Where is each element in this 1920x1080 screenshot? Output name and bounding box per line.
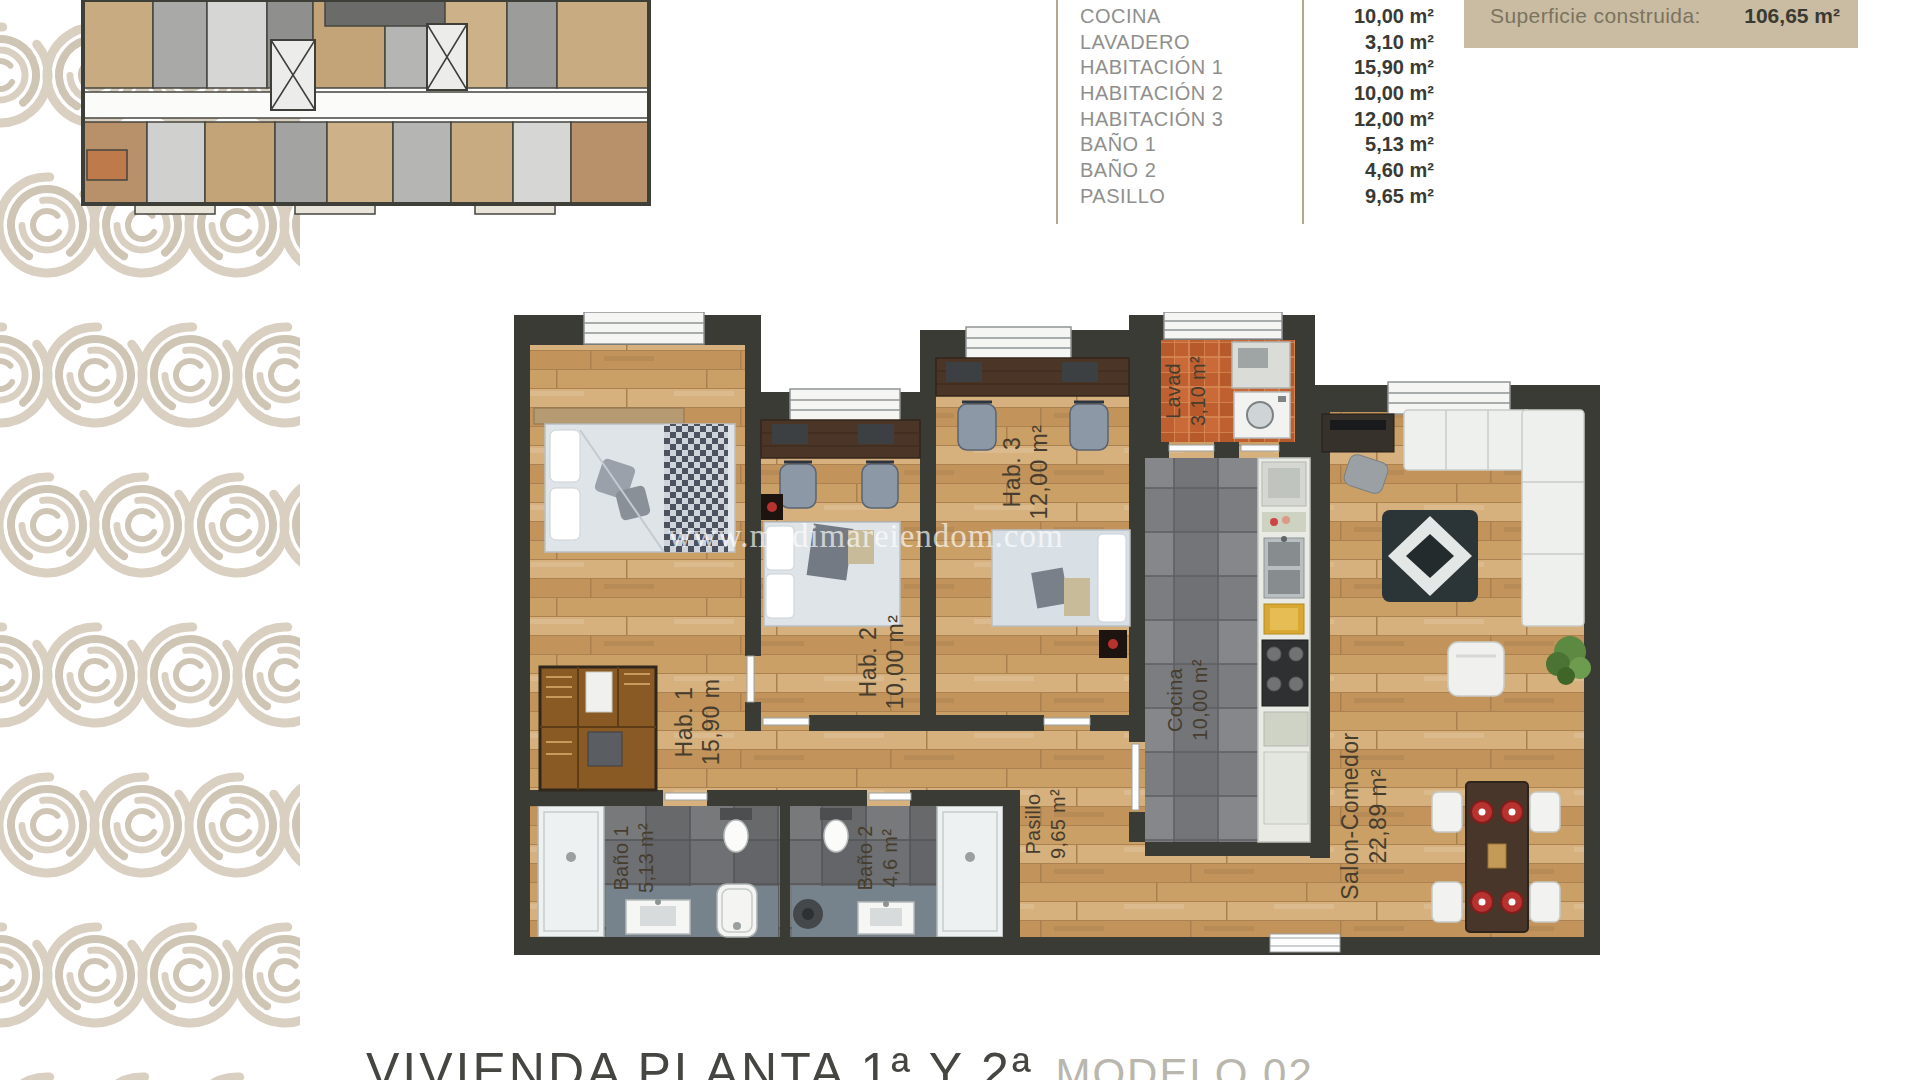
svg-text:3,10 m²: 3,10 m² bbox=[1187, 356, 1209, 426]
svg-text:9,65 m²: 9,65 m² bbox=[1047, 789, 1069, 859]
table-row: HABITACIÓN 312,00 m² bbox=[1058, 106, 1450, 132]
svg-text:4,6 m²: 4,6 m² bbox=[879, 829, 901, 888]
room-name: COCINA bbox=[1058, 5, 1308, 28]
bathtub-icon bbox=[717, 884, 757, 937]
room-area: 12,00 m² bbox=[1308, 108, 1450, 131]
svg-text:Hab. 1: Hab. 1 bbox=[671, 687, 697, 758]
room-label-hab2: Hab. 2 10,00 m² bbox=[855, 615, 908, 710]
room-area: 22,89 m² bbox=[1308, 0, 1450, 2]
room-name: BAÑO 2 bbox=[1058, 159, 1308, 182]
room-area: 10,00 m² bbox=[1308, 82, 1450, 105]
sink-vanity-icon bbox=[858, 901, 914, 934]
room-area: 5,13 m² bbox=[1308, 133, 1450, 156]
table-row: PASILLO9,65 m² bbox=[1058, 184, 1450, 210]
svg-text:Pasillo: Pasillo bbox=[1022, 793, 1044, 854]
room-name: HABITACIÓN 3 bbox=[1058, 108, 1308, 131]
bedroom2-furniture bbox=[761, 420, 920, 626]
headboard-shelf bbox=[534, 408, 684, 424]
room-area: 4,60 m² bbox=[1308, 159, 1450, 182]
room-name: HABITACIÓN 2 bbox=[1058, 82, 1308, 105]
single-bed-icon bbox=[764, 522, 900, 626]
room-area-table: SALON-COMEDOR22,89 m² COCINA10,00 m² LAV… bbox=[1056, 0, 1450, 224]
svg-text:22,89 m²: 22,89 m² bbox=[1365, 769, 1391, 864]
page-title: VIVIENDA PLANTA 1ª Y 2ª bbox=[366, 1043, 1033, 1080]
room-area: 3,10 m² bbox=[1308, 31, 1450, 54]
room-label-hab3: Hab. 3 12,00 m² bbox=[999, 425, 1052, 520]
svg-text:5,13 m²: 5,13 m² bbox=[635, 823, 657, 893]
tv-console bbox=[1322, 414, 1394, 452]
single-bed-icon bbox=[992, 530, 1130, 626]
sink-vanity-icon bbox=[626, 899, 690, 934]
stove-icon bbox=[1262, 640, 1308, 706]
double-bed-icon bbox=[545, 424, 735, 552]
svg-text:Salon-Comedor: Salon-Comedor bbox=[1337, 732, 1363, 900]
svg-text:12,00 m²: 12,00 m² bbox=[1026, 425, 1052, 520]
mini-building-plan bbox=[75, 0, 660, 215]
armchair-icon bbox=[1448, 642, 1504, 696]
washing-machine-icon bbox=[1234, 392, 1290, 438]
room-area: 15,90 m² bbox=[1308, 56, 1450, 79]
room-name: BAÑO 1 bbox=[1058, 133, 1308, 156]
table-row: COCINA10,00 m² bbox=[1058, 4, 1450, 30]
table-row: BAÑO 15,13 m² bbox=[1058, 132, 1450, 158]
svg-text:Lavad: Lavad bbox=[1162, 363, 1184, 419]
svg-text:15,90 m: 15,90 m bbox=[698, 679, 724, 766]
room-area: 9,65 m² bbox=[1308, 185, 1450, 208]
model-label: MODELO 02 bbox=[1055, 1050, 1313, 1080]
table-row: BAÑO 24,60 m² bbox=[1058, 158, 1450, 184]
svg-text:10,00 m²: 10,00 m² bbox=[882, 615, 908, 710]
table-row: LAVADERO3,10 m² bbox=[1058, 29, 1450, 55]
superficie-construida-badge: Superficie construida: 106,65 m² bbox=[1464, 0, 1858, 48]
superficie-label: Superficie construida: bbox=[1490, 4, 1701, 28]
svg-text:10,00 m²: 10,00 m² bbox=[1189, 659, 1211, 740]
wardrobe-icon bbox=[540, 667, 656, 790]
sink-icon bbox=[1264, 536, 1304, 598]
room-name: PASILLO bbox=[1058, 185, 1308, 208]
svg-text:Hab. 3: Hab. 3 bbox=[999, 437, 1025, 508]
room-label-hab1: Hab. 1 15,90 m bbox=[671, 679, 724, 766]
rug-icon bbox=[1382, 510, 1478, 602]
superficie-value: 106,65 m² bbox=[1744, 4, 1840, 28]
svg-text:Baño 2: Baño 2 bbox=[854, 825, 876, 890]
apartment-floor-plan: Hab. 1 15,90 m Hab. 2 10,00 m² Hab. 3 12… bbox=[514, 312, 1600, 955]
room-name: LAVADERO bbox=[1058, 31, 1308, 54]
svg-text:Baño 1: Baño 1 bbox=[610, 825, 632, 890]
room-area: 10,00 m² bbox=[1308, 5, 1450, 28]
room-name: HABITACIÓN 1 bbox=[1058, 56, 1308, 79]
footer: VIVIENDA PLANTA 1ª Y 2ªMODELO 02 bbox=[366, 1042, 1314, 1080]
table-column-divider bbox=[1302, 0, 1304, 224]
table-row: HABITACIÓN 115,90 m² bbox=[1058, 55, 1450, 81]
svg-text:Cocina: Cocina bbox=[1164, 667, 1186, 732]
room-name: SALON-COMEDOR bbox=[1058, 0, 1308, 2]
kitchen-fixtures bbox=[1258, 458, 1310, 842]
table-row: HABITACIÓN 210,00 m² bbox=[1058, 81, 1450, 107]
svg-text:Hab. 2: Hab. 2 bbox=[855, 627, 881, 698]
